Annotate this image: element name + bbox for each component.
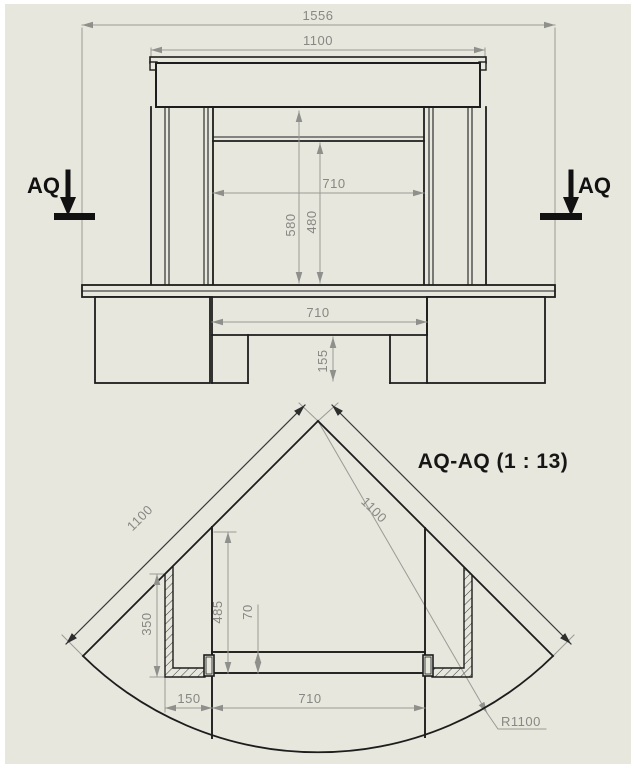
dim-opening-width-label: 710 <box>322 176 345 191</box>
drawing-page: 1556 1100 <box>0 0 635 768</box>
section-view: AQ-AQ (1 : 13) R1100 <box>62 403 574 752</box>
dim-overall-width-label: 1556 <box>303 8 334 23</box>
firebox-side-edges <box>212 527 425 738</box>
right-return-panel <box>432 567 472 677</box>
dim-base-opening-width: 710 <box>212 305 427 322</box>
dim-height-opening: 480 <box>304 143 320 283</box>
dim-overall-width: 1556 <box>82 8 555 25</box>
dim-plinth-height: 155 <box>315 337 333 381</box>
dim-opening-width: 710 <box>213 176 424 193</box>
dim-side-return-depth-label: 350 <box>139 612 154 635</box>
section-cut-marker-right: AQ <box>540 172 611 220</box>
dim-section-opening-width: 710 <box>212 691 425 708</box>
pilaster-legs <box>151 107 486 285</box>
dim-hearth-thickness-label: 70 <box>240 604 255 619</box>
dim-left-length: 1100 <box>66 405 305 644</box>
dim-depth-front-label: 485 <box>210 600 225 623</box>
dim-section-opening-width-label: 710 <box>298 691 321 706</box>
dim-right-length: 1100 <box>332 405 571 644</box>
dim-shelf-width-label: 1100 <box>303 33 333 48</box>
dim-right-length-label: 1100 <box>358 494 390 526</box>
dim-side-offset: 150 <box>165 691 212 708</box>
dim-radius-label: R1100 <box>501 714 541 729</box>
dim-plinth-height-label: 155 <box>315 349 330 372</box>
dim-left-length-label: 1100 <box>124 502 156 534</box>
section-cut-arrow-left-icon <box>54 172 95 220</box>
section-cut-arrow-right-icon <box>540 172 582 220</box>
dim-side-return-depth: 350 <box>139 574 157 677</box>
dim-height-overall-label: 580 <box>283 213 298 236</box>
dim-shelf-width: 1100 <box>151 33 485 50</box>
section-label-right: AQ <box>578 173 611 198</box>
section-cut-marker-left: AQ <box>27 172 95 220</box>
dim-side-offset-label: 150 <box>177 691 200 706</box>
drawing-canvas: 1556 1100 <box>0 0 635 768</box>
firebox-floor <box>212 652 425 673</box>
dim-height-opening-label: 480 <box>304 210 319 233</box>
front-view: 1556 1100 <box>27 8 611 383</box>
mantel-shelf <box>150 57 486 107</box>
section-label-left: AQ <box>27 173 60 198</box>
dim-base-opening-width-label: 710 <box>306 305 329 320</box>
left-return-panel <box>165 566 205 677</box>
hearth-slab <box>82 285 555 297</box>
section-view-title: AQ-AQ (1 : 13) <box>418 450 569 473</box>
